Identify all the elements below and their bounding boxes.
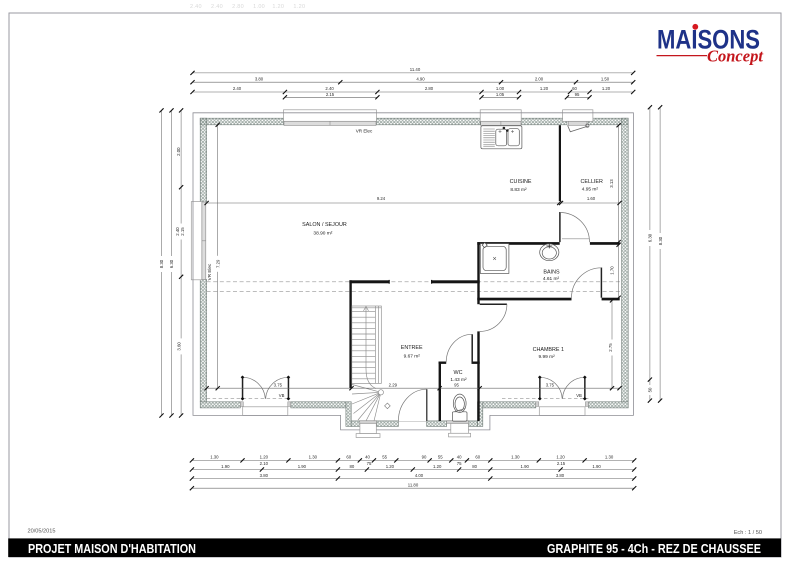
- svg-text:2.29: 2.29: [389, 383, 398, 388]
- svg-text:95: 95: [454, 383, 459, 388]
- svg-text:60: 60: [475, 455, 480, 460]
- svg-text:1.50: 1.50: [601, 76, 610, 81]
- svg-text:40: 40: [365, 455, 370, 460]
- svg-text:CHAMBRE 1: CHAMBRE 1: [533, 347, 564, 353]
- svg-text:4.61 m²: 4.61 m²: [543, 276, 560, 282]
- svg-text:1.30: 1.30: [210, 455, 219, 460]
- svg-text:1.20: 1.20: [556, 455, 565, 460]
- svg-text:75: 75: [367, 461, 372, 466]
- svg-text:1.20: 1.20: [386, 464, 395, 469]
- svg-text:GRAPHITE 95 - 4Ch - REZ DE CHA: GRAPHITE 95 - 4Ch - REZ DE CHAUSSEE: [547, 541, 761, 556]
- svg-text:2.40: 2.40: [233, 86, 242, 91]
- svg-text:80: 80: [350, 464, 355, 469]
- svg-text:6.30: 6.30: [169, 259, 174, 268]
- svg-text:9.99 m²: 9.99 m²: [538, 354, 555, 360]
- svg-text:1.20: 1.20: [602, 86, 611, 91]
- svg-text:55: 55: [382, 455, 387, 460]
- svg-text:1.30: 1.30: [309, 455, 318, 460]
- svg-text:60: 60: [572, 86, 577, 91]
- svg-text:VR Elec: VR Elec: [207, 263, 212, 280]
- svg-text:1.90: 1.90: [521, 464, 530, 469]
- svg-text:1.60: 1.60: [587, 196, 596, 201]
- svg-text:3.13: 3.13: [609, 179, 614, 188]
- svg-text:8.30: 8.30: [159, 259, 164, 268]
- svg-text:2.75: 2.75: [608, 343, 613, 352]
- svg-text:1.90: 1.90: [592, 464, 601, 469]
- svg-text:1.90: 1.90: [298, 464, 307, 469]
- svg-text:1.05: 1.05: [496, 92, 505, 97]
- svg-text:SALON / SEJOUR: SALON / SEJOUR: [302, 222, 347, 228]
- svg-text:1.20: 1.20: [260, 455, 269, 460]
- svg-text:VB: VB: [279, 393, 285, 398]
- svg-text:VR Elec: VR Elec: [356, 129, 373, 134]
- svg-text:1.30: 1.30: [511, 455, 520, 460]
- svg-text:CELLIER: CELLIER: [580, 179, 603, 185]
- svg-text:2.15: 2.15: [180, 227, 185, 236]
- svg-text:CUISINE: CUISINE: [510, 179, 532, 185]
- svg-text:BAINS: BAINS: [543, 270, 560, 276]
- svg-text:20/05/2015: 20/05/2015: [28, 529, 56, 535]
- svg-text:VB: VB: [576, 393, 582, 398]
- svg-text:WC: WC: [454, 370, 463, 376]
- svg-text:75: 75: [457, 461, 462, 466]
- svg-text:1.70: 1.70: [609, 266, 614, 275]
- svg-text:1.20: 1.20: [433, 464, 442, 469]
- svg-text:1.90: 1.90: [221, 464, 230, 469]
- svg-text:55: 55: [438, 455, 443, 460]
- svg-text:3.75: 3.75: [546, 383, 555, 388]
- svg-text:60: 60: [346, 455, 351, 460]
- svg-text:4.00: 4.00: [415, 473, 424, 478]
- svg-text:7.29: 7.29: [215, 259, 220, 268]
- svg-text:9.24: 9.24: [377, 196, 386, 201]
- svg-text:1.00: 1.00: [496, 86, 505, 91]
- svg-text:PROJET MAISON D'HABITATION: PROJET MAISON D'HABITATION: [28, 541, 196, 556]
- svg-text:Ech : 1 / 50: Ech : 1 / 50: [734, 530, 762, 536]
- svg-text:6.30: 6.30: [648, 233, 653, 242]
- svg-text:2.80: 2.80: [425, 86, 434, 91]
- svg-text:3.80: 3.80: [260, 473, 269, 478]
- svg-text:8.83 m²: 8.83 m²: [510, 187, 527, 193]
- svg-text:8.30: 8.30: [658, 236, 663, 245]
- svg-text:ENTREE: ENTREE: [401, 345, 423, 351]
- svg-text:2.10: 2.10: [260, 461, 269, 466]
- svg-text:1.20: 1.20: [540, 86, 549, 91]
- svg-text:95: 95: [575, 92, 580, 97]
- svg-text:2.00: 2.00: [535, 76, 544, 81]
- svg-text:11.80: 11.80: [408, 483, 419, 488]
- svg-text:90: 90: [422, 455, 427, 460]
- svg-text:50: 50: [648, 387, 653, 392]
- svg-text:2.00: 2.00: [176, 147, 181, 156]
- svg-text:2.40: 2.40: [325, 86, 334, 91]
- svg-text:3.80: 3.80: [556, 473, 565, 478]
- svg-text:3.60: 3.60: [177, 342, 182, 351]
- svg-text:38.90 m²: 38.90 m²: [313, 230, 332, 236]
- svg-text:40: 40: [457, 455, 462, 460]
- svg-text:1.30: 1.30: [605, 455, 614, 460]
- svg-text:11.40: 11.40: [410, 67, 421, 72]
- svg-text:9.67 m²: 9.67 m²: [404, 353, 421, 359]
- svg-text:3.80: 3.80: [255, 76, 264, 81]
- svg-text:4.95 m²: 4.95 m²: [582, 187, 599, 193]
- svg-text:2.40 2.40 2.80 1.0: 2.40 2.40 2.80 1.00 1.20 1.20: [190, 4, 305, 10]
- svg-text:3.75: 3.75: [274, 383, 283, 388]
- svg-text:80: 80: [472, 464, 477, 469]
- svg-text:2.15: 2.15: [557, 461, 566, 466]
- svg-text:2.15: 2.15: [326, 92, 335, 97]
- svg-text:Concept: Concept: [707, 47, 763, 66]
- svg-text:4.90: 4.90: [416, 76, 425, 81]
